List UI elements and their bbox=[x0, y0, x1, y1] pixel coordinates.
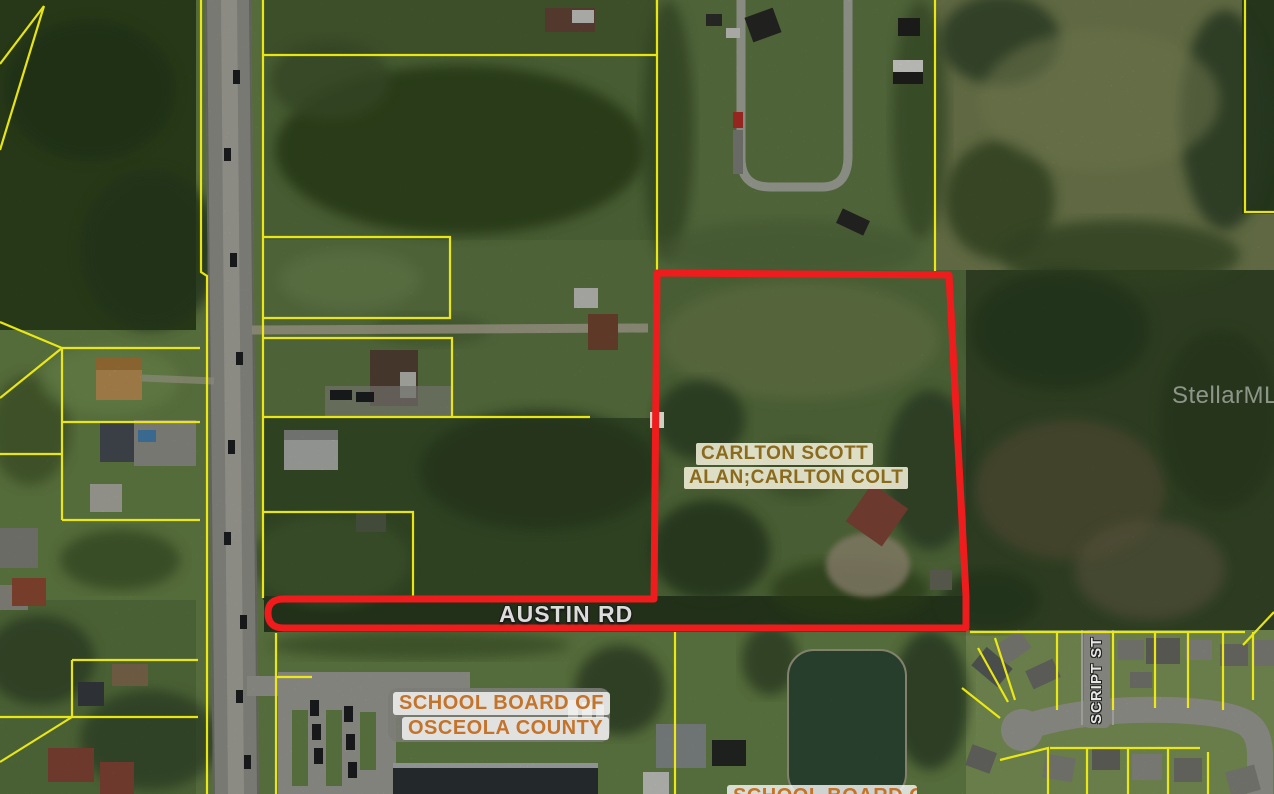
photo-noise-dark bbox=[0, 0, 1274, 794]
aerial-canvas bbox=[0, 0, 1274, 794]
road-label-austin-rd: AUSTIN RD bbox=[499, 602, 633, 626]
school-board-label-partial: SCHOOL BOARD OF bbox=[727, 785, 917, 794]
aerial-parcel-map: CARLTON SCOTT ALAN;CARLTON COLT AUSTIN R… bbox=[0, 0, 1274, 794]
watermark-stellar-mls: StellarMLS bbox=[1172, 382, 1274, 410]
owner-label-line1: CARLTON SCOTT bbox=[696, 443, 873, 465]
street-label-script-st: SCRIPT ST bbox=[1089, 637, 1105, 724]
school-board-label-line1: SCHOOL BOARD OF bbox=[393, 692, 610, 715]
owner-label-line2: ALAN;CARLTON COLT bbox=[684, 467, 908, 489]
school-board-label-line2: OSCEOLA COUNTY bbox=[402, 717, 609, 740]
school-board-label-partial-clip: SCHOOL BOARD OF bbox=[727, 785, 917, 794]
